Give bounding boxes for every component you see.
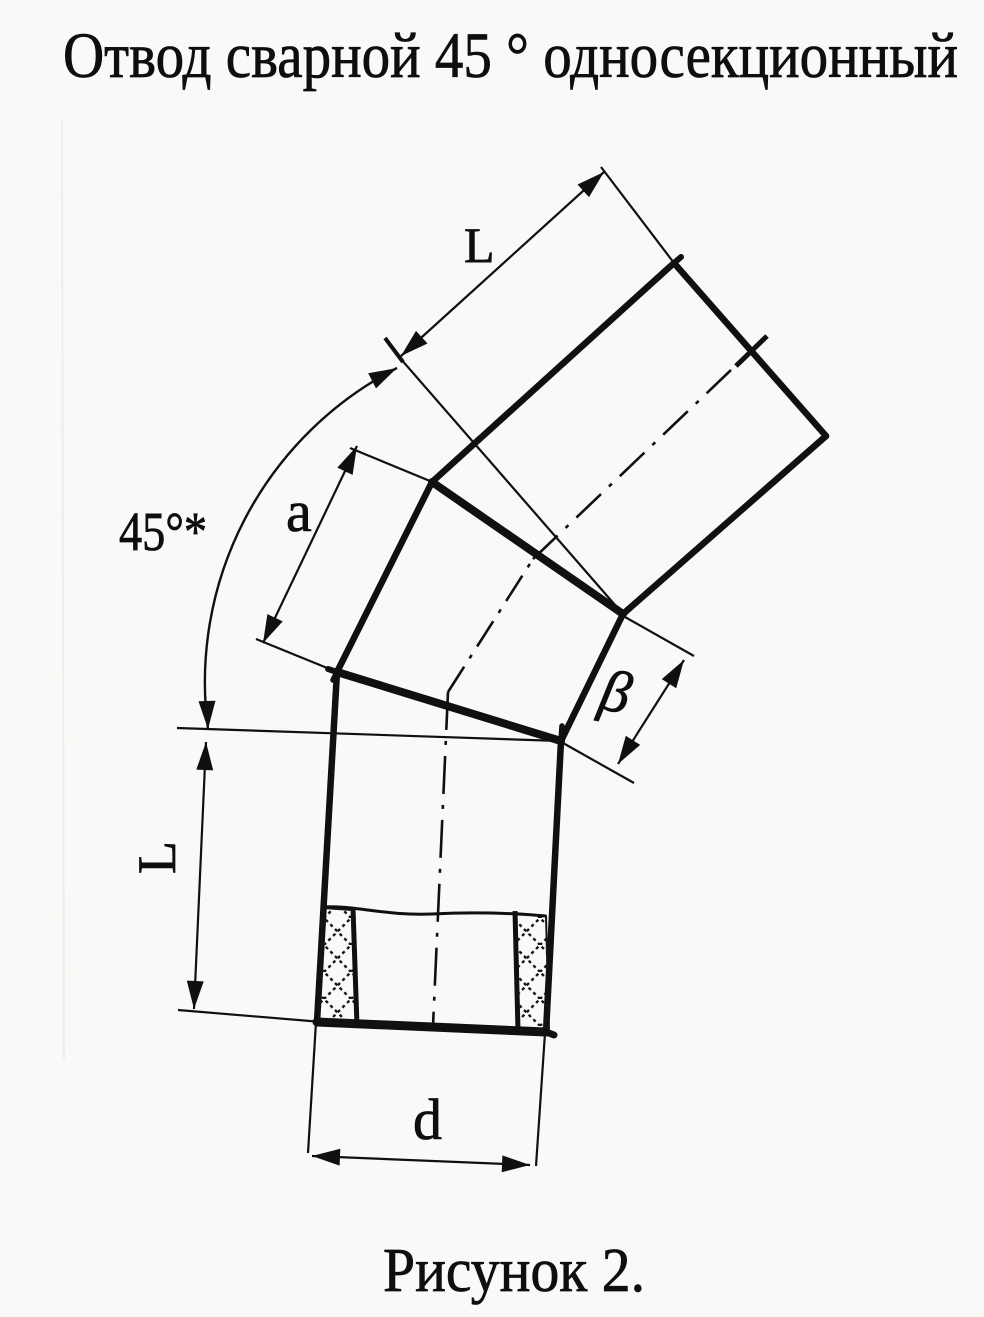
svg-text:L: L	[127, 841, 187, 874]
svg-text:L: L	[464, 217, 495, 273]
svg-text:Рисунок 2.: Рисунок 2.	[383, 1237, 645, 1305]
svg-text:d: d	[413, 1087, 442, 1152]
svg-text:45°*: 45°*	[119, 501, 207, 562]
svg-text:Отвод сварной 45 ° односекцион: Отвод сварной 45 ° односекционный	[63, 20, 958, 92]
svg-text:a: a	[286, 479, 312, 544]
